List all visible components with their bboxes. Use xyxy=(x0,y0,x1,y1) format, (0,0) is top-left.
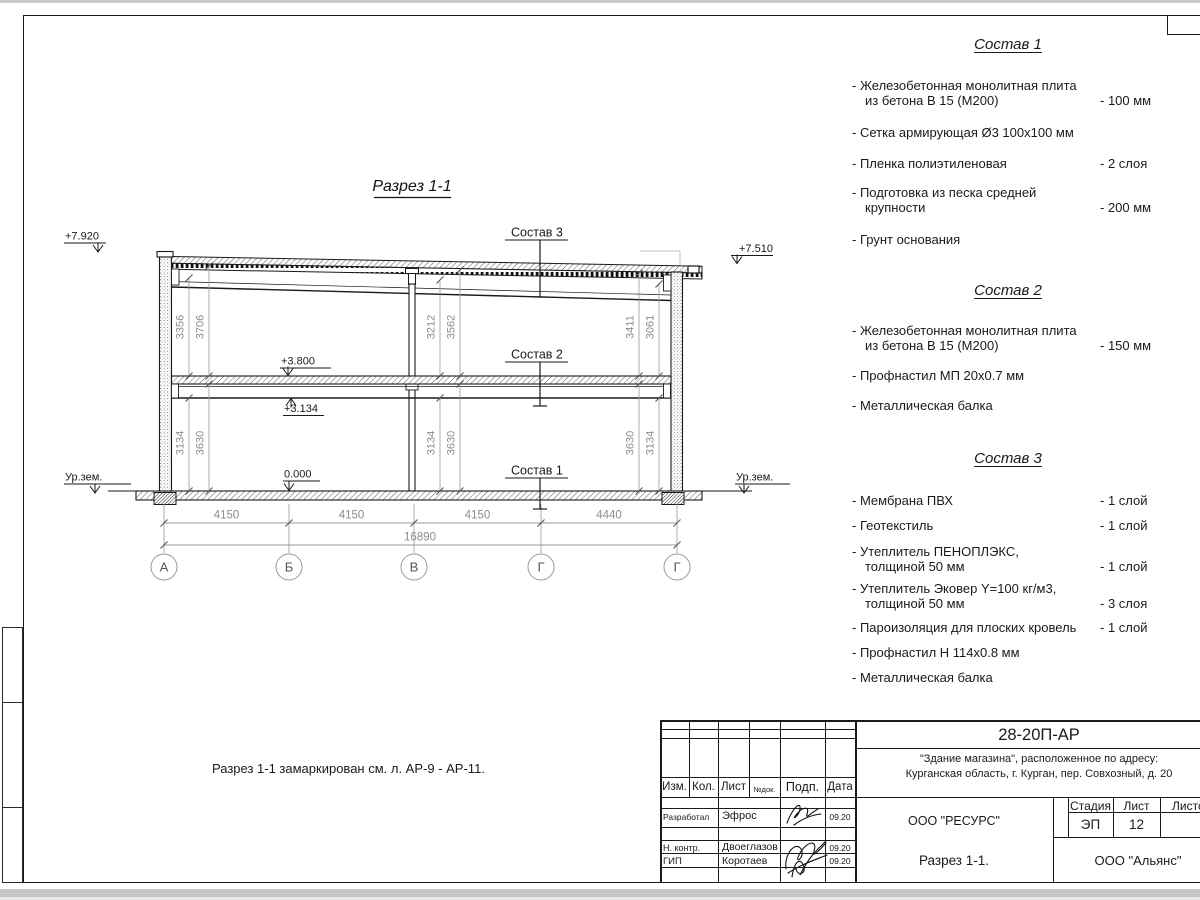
svg-text:3061: 3061 xyxy=(645,315,657,339)
callout-s3: Состав 3 xyxy=(511,226,563,240)
material-item: - Пленка полиэтиленовая - 2 слоя xyxy=(852,156,1200,171)
material-item: - Металлическая балка xyxy=(852,670,1200,685)
row-name: Эфрос xyxy=(722,810,757,822)
material-item: - Мембрана ПВХ - 1 слой xyxy=(852,493,1200,508)
col-list: Лист xyxy=(718,781,749,793)
col-izm: Изм. xyxy=(660,781,689,793)
level-roof-right: +7.510 xyxy=(739,243,773,255)
row-name: Двоеглазов xyxy=(722,841,778,853)
stage-value: ЭП xyxy=(1068,817,1113,832)
sheet-title: Разрез 1-1. xyxy=(855,853,1053,868)
material-item: - Подготовка из песка среднейкрупности -… xyxy=(852,185,1200,215)
axis-bubbles: А Б В Г Г xyxy=(151,554,690,580)
section-drawing: Разрез 1-1 xyxy=(30,165,830,610)
axis-label: Г xyxy=(673,560,680,575)
svg-text:3562: 3562 xyxy=(446,315,458,339)
svg-text:3134: 3134 xyxy=(426,431,438,455)
level-beam: +3.134 xyxy=(284,403,318,415)
callout-s1: Состав 1 xyxy=(511,464,563,478)
col-kol: Кол. xyxy=(689,781,718,793)
material-item: - Профнастил МП 20х0.7 мм xyxy=(852,368,1200,383)
svg-text:3706: 3706 xyxy=(195,315,207,339)
level-roof-left: +7.920 xyxy=(65,231,99,243)
callout-s2: Состав 2 xyxy=(511,348,563,362)
material-item: - Пароизоляция для плоских кровель - 1 с… xyxy=(852,620,1200,635)
axis-label: Г xyxy=(537,560,544,575)
material-item: - Железобетонная монолитная плитаиз бето… xyxy=(852,323,1200,353)
level-ground-left: Ур.зем. xyxy=(65,472,102,484)
horizontal-dim-labels: 4150 4150 4150 4440 16890 xyxy=(214,510,622,544)
svg-text:3411: 3411 xyxy=(625,315,637,339)
composition-panel: Состав 1 - Железобетонная монолитная пли… xyxy=(852,0,1200,760)
row-name: Коротаев xyxy=(722,855,767,867)
stage-label: Стадия xyxy=(1068,799,1113,813)
total-dim-label: 16890 xyxy=(404,532,436,544)
composition-2-title: Состав 2 xyxy=(852,282,1164,299)
material-item: - Утеплитель ПЕНОПЛЭКС,толщиной 50 мм - … xyxy=(852,544,1200,574)
left-margin-box-1 xyxy=(2,627,23,703)
signature xyxy=(787,805,821,825)
org-name: ООО "РЕСУРС" xyxy=(855,814,1053,828)
axis-label: А xyxy=(160,560,169,575)
doc-number: 28-20П-АР xyxy=(855,726,1200,745)
object-address-line2: Курганская область, г. Курган, пер. Совх… xyxy=(855,768,1200,780)
level-ground-right: Ур.зем. xyxy=(736,472,773,484)
svg-text:4150: 4150 xyxy=(339,510,365,522)
svg-text:3134: 3134 xyxy=(645,431,657,455)
row-role: Разработал xyxy=(663,812,709,822)
svg-text:3630: 3630 xyxy=(446,431,458,455)
svg-text:4150: 4150 xyxy=(214,510,240,522)
object-address-line1: "Здание магазина", расположенное по адре… xyxy=(855,753,1200,765)
svg-text:3630: 3630 xyxy=(625,431,637,455)
drawing-title: Разрез 1-1 xyxy=(372,178,451,195)
svg-text:4440: 4440 xyxy=(596,510,622,522)
drawing-note: Разрез 1-1 замаркирован см. л. АР-9 - АР… xyxy=(212,761,485,776)
signature xyxy=(788,841,827,877)
sheet-label: Лист xyxy=(1113,799,1160,813)
signatures xyxy=(780,797,830,882)
material-item: - Железобетонная монолитная плитаиз бето… xyxy=(852,78,1200,108)
level-floor2: +3.800 xyxy=(281,356,315,368)
section-structure xyxy=(108,251,752,505)
material-item: - Грунт основания xyxy=(852,232,1200,247)
svg-text:3356: 3356 xyxy=(175,315,187,339)
material-item: - Сетка армирующая Ø3 100х100 мм xyxy=(852,125,1200,140)
row-role: ГИП xyxy=(663,856,682,867)
material-item: - Утеплитель Эковер Y=100 кг/м3,толщиной… xyxy=(852,581,1200,611)
col-data: Дата xyxy=(825,781,855,793)
axis-label: Б xyxy=(285,560,294,575)
level-zero: 0.000 xyxy=(284,469,312,481)
title-block: Изм. Кол. Лист №док. Подп. Дата Разработ… xyxy=(660,720,1200,882)
material-item: - Геотекстиль - 1 слой xyxy=(852,518,1200,533)
composition-3-title: Состав 3 xyxy=(852,450,1164,467)
row-role: Н. контр. xyxy=(663,843,700,853)
svg-text:3630: 3630 xyxy=(195,431,207,455)
left-margin-box-2 xyxy=(2,702,23,808)
material-item: - Профнастил Н 114х0.8 мм xyxy=(852,645,1200,660)
window-bottom-strip xyxy=(0,889,1200,897)
sheet-number: 12 xyxy=(1113,817,1160,832)
svg-text:4150: 4150 xyxy=(465,510,491,522)
contractor-name: ООО "Альянс" xyxy=(1053,853,1200,868)
sheets-label: Листов xyxy=(1160,799,1200,813)
axis-label: В xyxy=(410,560,419,575)
material-item: - Металлическая балка xyxy=(852,398,1200,413)
col-ndoc: №док. xyxy=(749,785,780,794)
dim-ticks xyxy=(161,263,681,549)
svg-text:3134: 3134 xyxy=(175,431,187,455)
left-margin-box-3 xyxy=(2,807,23,883)
col-podp: Подп. xyxy=(780,780,825,794)
svg-text:3212: 3212 xyxy=(426,315,438,339)
composition-1-title: Состав 1 xyxy=(852,36,1164,53)
